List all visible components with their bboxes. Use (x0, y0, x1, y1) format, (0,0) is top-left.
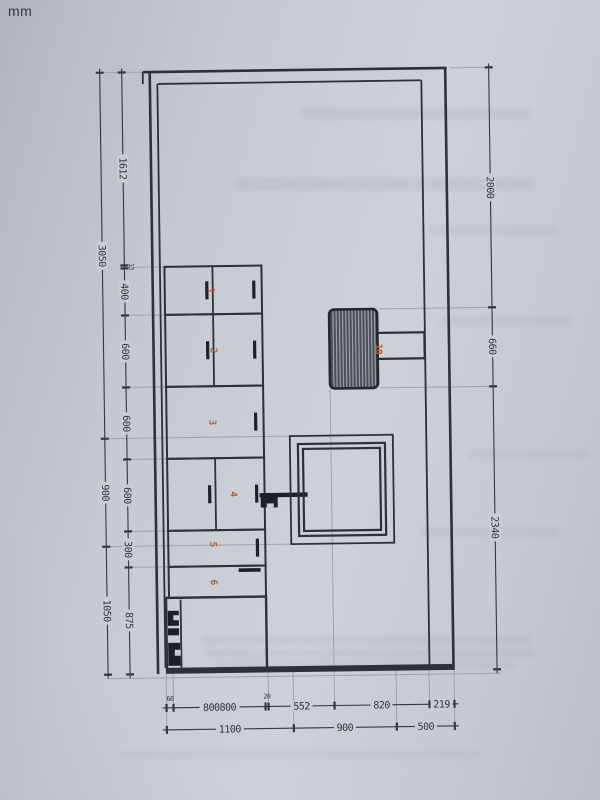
item-label-6: 6 (208, 580, 219, 586)
latch-fitting (260, 492, 308, 507)
dim-label-bottom-900: 900 (337, 723, 354, 734)
window (290, 435, 394, 544)
door-handle (254, 413, 257, 431)
door-handle (256, 539, 259, 557)
dim-label-left-inner-300: 300 (122, 541, 133, 558)
photographed-drawing-sheet: mm (0, 0, 600, 800)
door-handle (208, 485, 211, 503)
item-label-2: 2 (208, 348, 219, 353)
dim-label-left-inner-600c: 600 (121, 487, 132, 504)
item-label-1: 1 (205, 288, 216, 294)
dim-label-left-inner-13: 13 (127, 263, 135, 271)
dim-label-left-inner-1612: 1612 (116, 157, 127, 180)
dim-label-left-outer-3050: 3050 (96, 245, 107, 268)
dim-label-right-2340: 2340 (488, 516, 499, 539)
dim-label-right-2000: 2000 (484, 176, 495, 199)
dim-label-bottom-820: 820 (373, 700, 390, 711)
dim-label-left-inner-400: 400 (118, 283, 129, 300)
item-label-3: 3 (207, 420, 218, 426)
door-handle (255, 485, 258, 503)
door-handle (252, 281, 255, 299)
elevation-drawing: 3050 900 1050 1612 13 400 600 600 600 30… (0, 0, 600, 800)
dim-label-left-inner-600a: 600 (119, 343, 130, 360)
dim-label-bottom-800800: 800800 (203, 702, 237, 713)
dim-label-right-660: 660 (486, 338, 497, 355)
cabinet-base-section (166, 596, 267, 669)
item-label-10: 10 (373, 344, 384, 355)
dim-label-left-inner-875: 875 (123, 612, 134, 629)
dim-label-bottom-1100: 1100 (219, 724, 242, 735)
dim-label-bottom-20: 20 (263, 692, 271, 700)
tall-cabinet-unit (161, 265, 310, 670)
item-label-4: 4 (228, 491, 239, 497)
hinge-fittings (168, 611, 181, 666)
dim-label-bottom-60: 60 (166, 695, 174, 703)
dim-label-left-inner-600b: 600 (120, 415, 131, 432)
left-wall (150, 72, 166, 674)
dim-label-left-outer-1050: 1050 (101, 600, 112, 623)
cabinet-section-5 (168, 530, 265, 567)
dim-label-bottom-500: 500 (418, 722, 435, 733)
drawer-handle (239, 568, 261, 572)
dim-label-bottom-219: 219 (433, 699, 450, 710)
right-wall (421, 68, 453, 670)
door-handle (253, 341, 256, 359)
dim-label-left-outer-900: 900 (99, 484, 110, 501)
ceiling (143, 68, 447, 84)
item-label-5: 5 (207, 542, 218, 548)
dim-label-bottom-552: 552 (293, 701, 310, 712)
